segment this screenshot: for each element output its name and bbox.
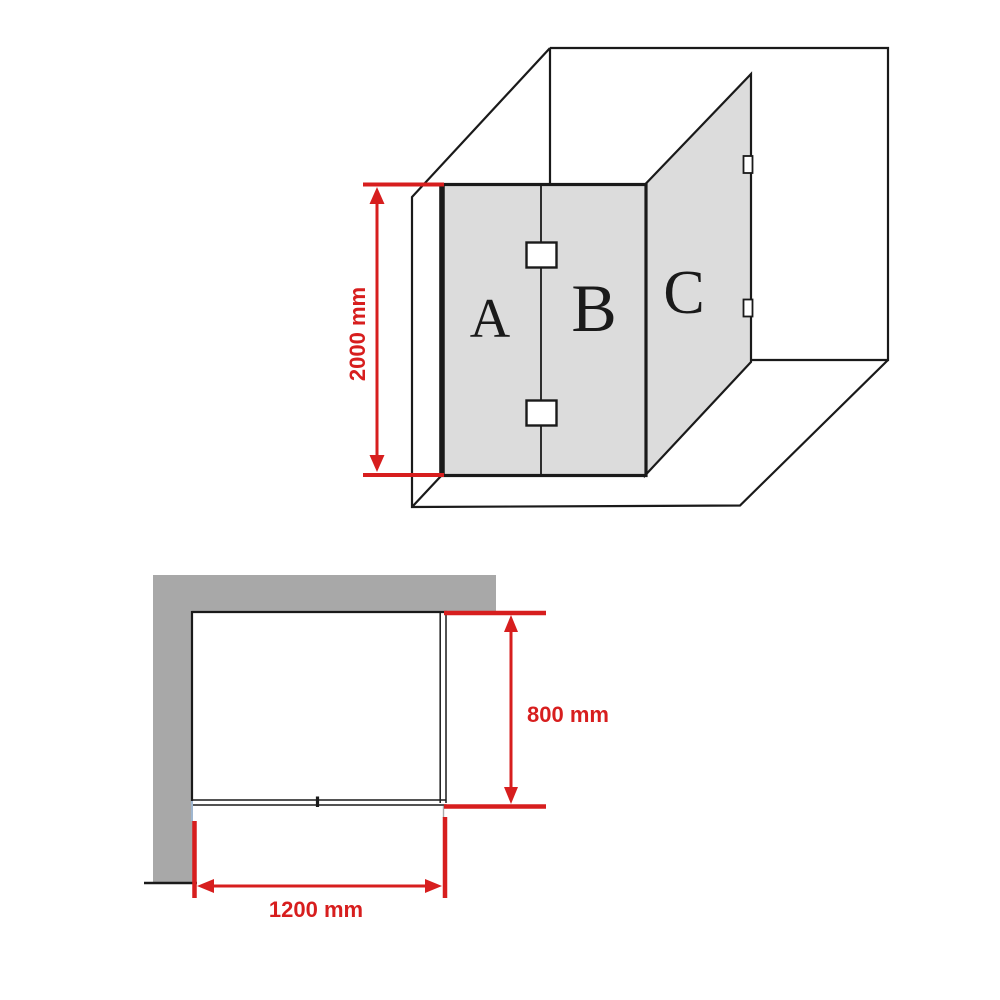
arrowhead-left-icon	[197, 879, 214, 893]
arrowhead-down-icon	[370, 455, 385, 472]
depth-dimension-label: 800 mm	[527, 702, 609, 727]
height-dimension: 2000 mm	[345, 185, 444, 476]
panel-c-wall-bracket-bottom	[744, 300, 753, 317]
perspective-view: A B C 2000 mm	[345, 48, 888, 507]
height-dimension-label: 2000 mm	[345, 287, 370, 381]
arrowhead-up-icon	[504, 615, 518, 632]
arrowhead-down-icon	[504, 787, 518, 804]
panel-a-label: A	[470, 288, 511, 350]
hinge-bottom	[527, 401, 557, 426]
hinge-top	[527, 243, 557, 268]
shower-screen-dimension-diagram: A B C 2000 mm	[0, 0, 1000, 1000]
wall-left	[153, 575, 193, 883]
width-dimension-label: 1200 mm	[269, 897, 363, 922]
width-dimension: 1200 mm	[195, 817, 446, 922]
panel-c-label: C	[663, 259, 704, 327]
depth-dimension: 800 mm	[444, 613, 609, 807]
panel-b-label: B	[571, 270, 616, 346]
arrowhead-up-icon	[370, 187, 385, 204]
arrowhead-right-icon	[425, 879, 442, 893]
wall-top	[153, 575, 496, 611]
panel-c-wall-bracket-top	[744, 156, 753, 173]
plan-view: 800 mm 1200 mm	[144, 575, 609, 922]
